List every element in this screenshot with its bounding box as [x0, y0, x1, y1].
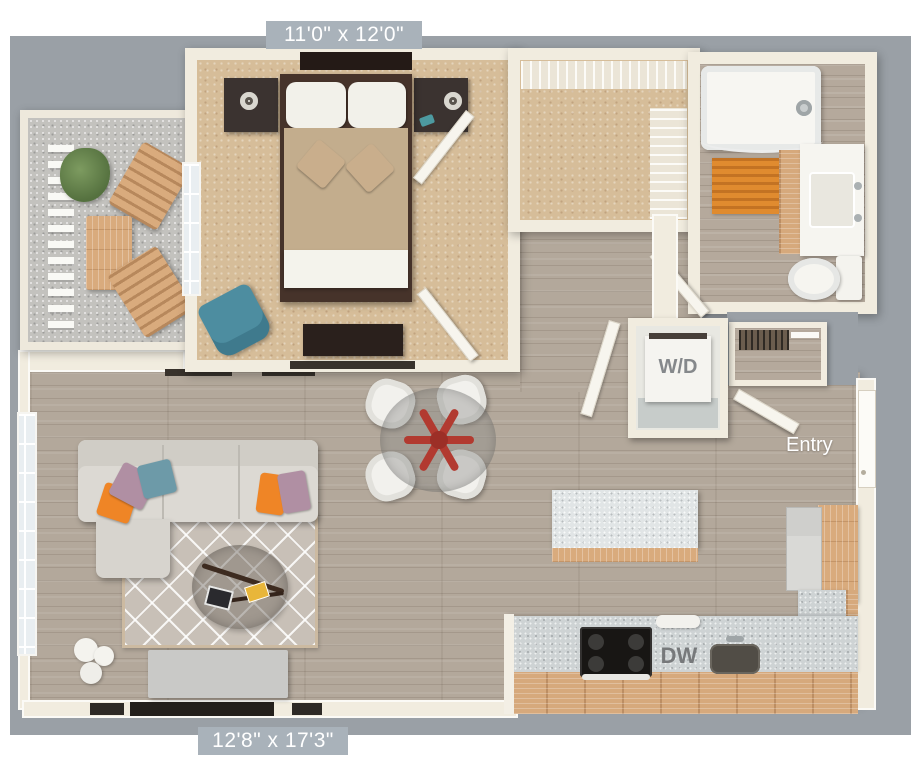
closet-shelf-right	[650, 108, 687, 219]
bedroom-wall-window	[290, 361, 415, 369]
kitchen-cabinet-front	[508, 672, 858, 714]
coat-closet-hangers	[739, 330, 789, 350]
sofa-seam-2	[238, 445, 240, 519]
decor-vase-3	[80, 662, 102, 684]
bedroom-dimensions-badge: 11'0" x 12'0"	[266, 21, 422, 49]
sink-faucet-cold	[854, 214, 862, 222]
kitchen-faucet	[726, 636, 744, 642]
fridge-cabinet	[818, 505, 858, 602]
floorplan: W/D Entry DW 1	[0, 0, 921, 768]
tub-faucet	[796, 100, 812, 116]
stove-burner-2	[628, 634, 644, 650]
hall-wall-segment	[652, 214, 678, 322]
bed-blanket	[284, 128, 408, 250]
counter-towel	[656, 615, 700, 628]
lamp-left	[240, 92, 258, 110]
bottom-wall-window-small-right	[292, 703, 322, 715]
bedroom-balcony-window	[182, 162, 201, 296]
sink-faucet-hot	[854, 182, 862, 190]
counter-end-panel	[504, 614, 514, 714]
stove-burner-4	[628, 656, 644, 672]
toilet-bowl	[788, 258, 840, 300]
dining-table-base-hub	[430, 431, 448, 449]
sofa-chaise	[96, 520, 170, 578]
stove-handle	[582, 674, 650, 680]
washer-dryer-panel	[649, 333, 707, 339]
tv-console	[148, 650, 288, 698]
kitchen-island-top	[552, 490, 698, 548]
living-top-wall	[18, 350, 185, 372]
bed-pillow-left	[286, 82, 346, 128]
bedroom-headboard-window	[300, 52, 412, 70]
stove-burner-3	[588, 656, 604, 672]
kitchen-sink	[710, 644, 760, 674]
stove-burner-1	[588, 634, 604, 650]
bottom-wall-window-small-left	[90, 703, 124, 715]
living-dimensions-badge: 12'8" x 17'3"	[198, 727, 348, 755]
laundry-closet-floor	[638, 398, 718, 428]
entry-door-handle	[861, 470, 866, 475]
bedroom-dresser	[303, 324, 403, 356]
refrigerator	[786, 507, 822, 591]
coat-closet-shelf	[791, 332, 819, 338]
lamp-right	[444, 92, 462, 110]
vanity-sink	[809, 172, 855, 228]
living-left-window	[17, 412, 37, 656]
bed-foot-sheet	[284, 250, 408, 288]
dishwasher-label: DW	[656, 643, 702, 669]
bed-pillow-right	[348, 82, 406, 128]
washer-dryer-label: W/D	[645, 356, 711, 379]
closet-shelf-top	[521, 61, 687, 89]
kitchen-island-base	[552, 548, 698, 562]
bottom-wall-window-large	[130, 702, 274, 716]
entry-label: Entry	[786, 434, 856, 458]
